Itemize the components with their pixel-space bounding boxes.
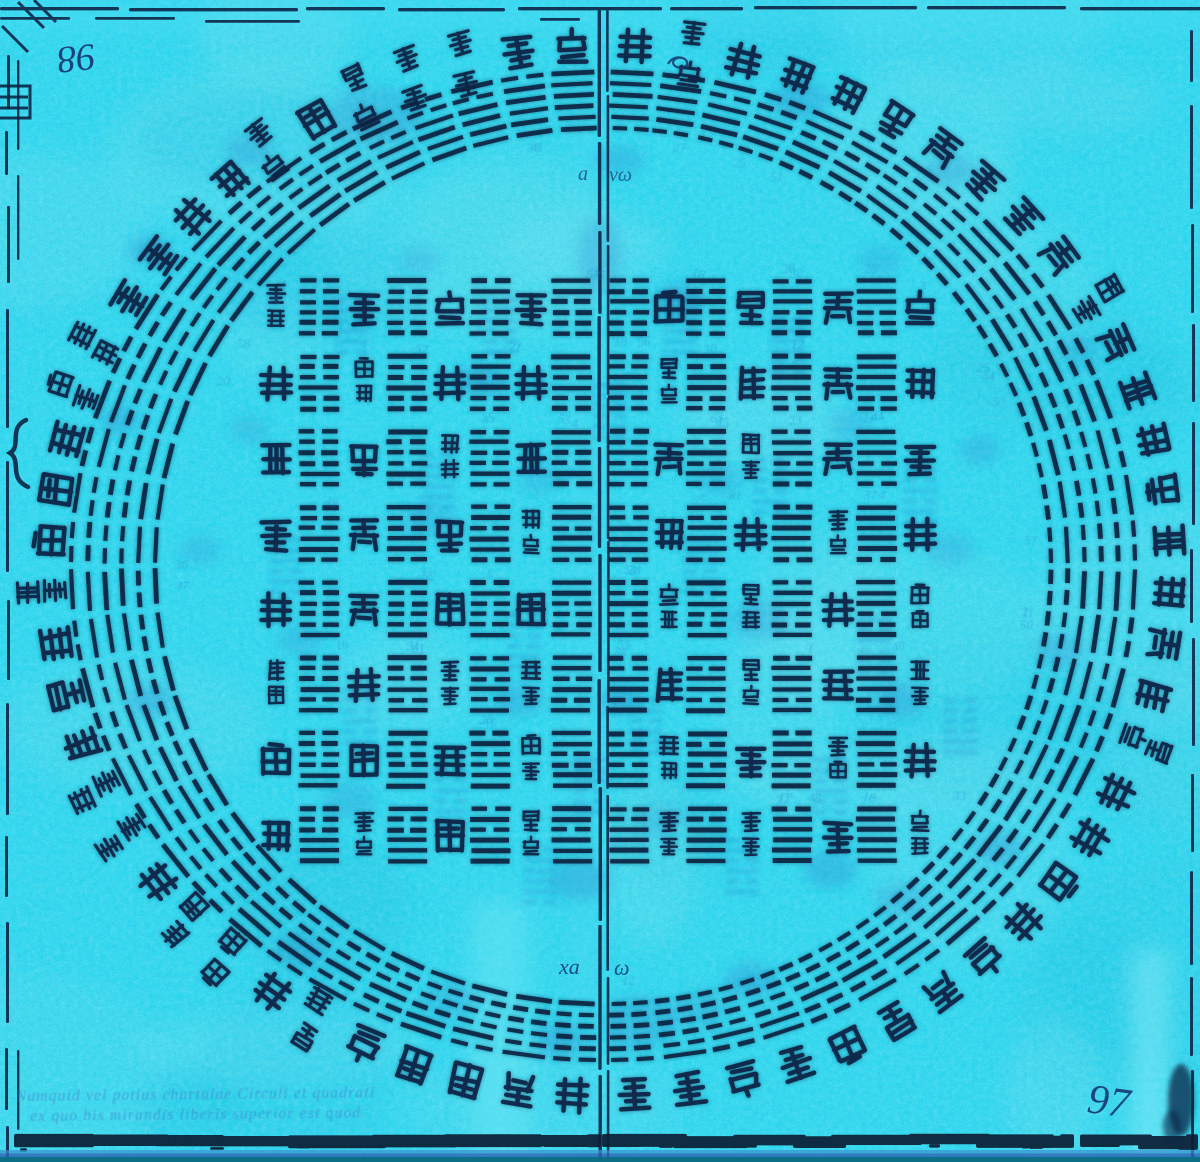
svg-text:45: 45 [716,414,731,430]
svg-text:58: 58 [237,336,251,351]
svg-text:8: 8 [486,566,494,581]
svg-text:23: 23 [788,412,803,428]
svg-text:50: 50 [1020,617,1034,632]
svg-text:vω: vω [609,164,632,186]
svg-text:51: 51 [770,169,783,184]
svg-text:61: 61 [412,641,425,656]
svg-text:52: 52 [415,341,430,357]
svg-text:33: 33 [952,788,967,803]
svg-text:18: 18 [862,789,877,806]
svg-text:52: 52 [993,394,1007,409]
svg-text:37: 37 [863,487,878,502]
svg-text:47: 47 [176,578,190,593]
svg-text:3: 3 [919,278,927,293]
svg-text:ω: ω [614,955,630,980]
svg-text:52: 52 [422,568,437,584]
svg-text:12: 12 [791,336,806,352]
svg-text:97: 97 [1085,1076,1135,1128]
svg-text:ex quo bis mirandis liberis su: ex quo bis mirandis liberis superior est… [30,1104,360,1124]
svg-text:28: 28 [864,261,878,276]
svg-text:98: 98 [55,35,97,81]
svg-text:48: 48 [808,790,822,805]
svg-text:26: 26 [480,712,494,727]
svg-text:27: 27 [673,140,687,155]
svg-text:44: 44 [982,369,996,384]
svg-text:2: 2 [1022,604,1029,619]
svg-text:20: 20 [217,373,231,388]
svg-text:36: 36 [174,557,189,572]
svg-text:53: 53 [586,266,601,283]
svg-text:30: 30 [789,266,804,281]
svg-text:25: 25 [733,155,747,170]
svg-text:50: 50 [703,341,718,357]
svg-text:11: 11 [862,410,876,426]
svg-text:57: 57 [1024,533,1038,548]
svg-text:17: 17 [778,789,793,805]
svg-text:1: 1 [281,277,288,292]
svg-text:26: 26 [268,292,282,307]
svg-text:41: 41 [531,139,544,154]
svg-text:1: 1 [807,640,815,656]
svg-text:3: 3 [279,831,287,846]
svg-text:a: a [578,163,588,185]
svg-text:xa: xa [558,954,580,979]
svg-text:35: 35 [691,492,706,507]
